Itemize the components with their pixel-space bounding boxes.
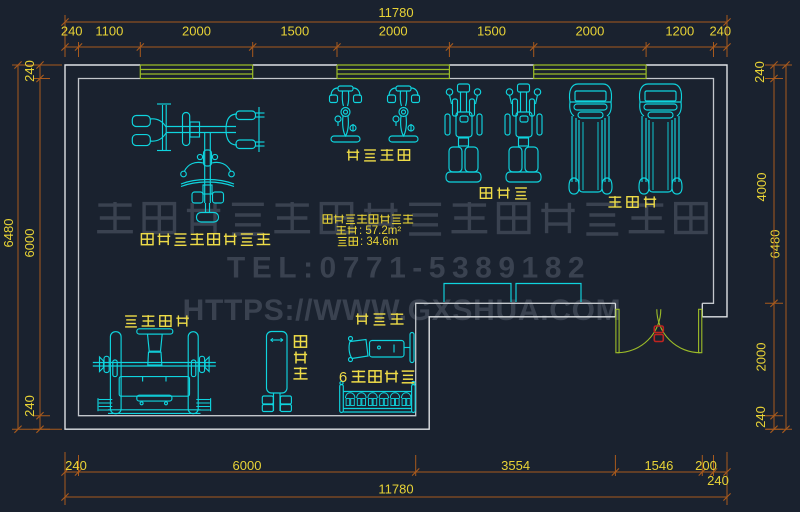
svg-text:HTTPS://WWW.GXSHUA.COM: HTTPS://WWW.GXSHUA.COM (183, 294, 622, 327)
svg-text:2000: 2000 (575, 24, 604, 39)
svg-text:2000: 2000 (182, 24, 211, 39)
svg-text:6480: 6480 (768, 230, 783, 259)
svg-text:240: 240 (61, 24, 83, 39)
svg-text:1500: 1500 (280, 24, 309, 39)
svg-text:2000: 2000 (379, 24, 408, 39)
svg-text:3554: 3554 (501, 458, 530, 473)
svg-text:1546: 1546 (644, 458, 673, 473)
svg-text:240: 240 (22, 395, 37, 417)
svg-text:240: 240 (753, 406, 768, 428)
svg-text:1200: 1200 (665, 24, 694, 39)
svg-text:240: 240 (707, 473, 729, 488)
svg-text:6000: 6000 (22, 229, 37, 258)
svg-text:240: 240 (65, 458, 87, 473)
svg-text:6000: 6000 (233, 458, 262, 473)
svg-text:TEL:0771-5389182: TEL:0771-5389182 (227, 252, 591, 285)
svg-text:240: 240 (22, 60, 37, 82)
svg-text:1500: 1500 (477, 24, 506, 39)
svg-text:6: 6 (339, 369, 347, 386)
svg-text:240: 240 (709, 24, 731, 39)
svg-text:4000: 4000 (754, 173, 769, 202)
svg-text:6480: 6480 (1, 219, 16, 248)
svg-text:11780: 11780 (378, 482, 413, 497)
svg-text:11780: 11780 (378, 5, 413, 20)
svg-text:: 34.6m: : 34.6m (360, 236, 398, 248)
svg-text:2000: 2000 (754, 343, 769, 372)
svg-text:200: 200 (695, 458, 717, 473)
svg-text:1100: 1100 (95, 24, 123, 39)
svg-text:240: 240 (752, 61, 767, 83)
